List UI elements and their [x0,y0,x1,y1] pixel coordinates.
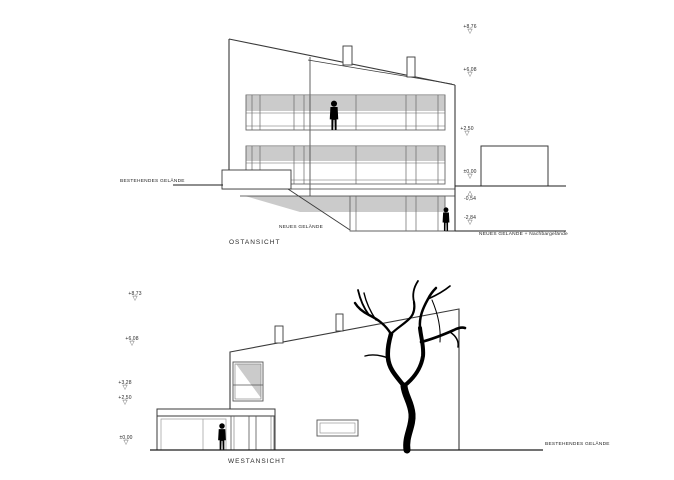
east-chimney-1 [343,46,352,65]
elevation-marker: +6,08 ▽ [463,68,476,78]
existing-ground-label-west: BESTEHENDES GELÄNDE [545,443,610,448]
west-upper-window [233,362,263,401]
elevation-marker: +3,28 ▽ [118,381,131,391]
elevations-linework [0,0,674,480]
west-chimney-2 [336,314,343,331]
elevation-value: -0,54 [464,197,476,202]
level-triangle-icon: ▽ [468,73,473,78]
elevation-marker: -2,84 ▽ [464,216,476,226]
west-elevation-title: WESTANSICHT [228,459,286,466]
east-elevation-title: OSTANSICHT [229,240,280,247]
new-ground-neighbor-label-east: NEUES GELÄNDE + Nachbargelände [479,233,568,238]
east-shadow-bands [245,96,445,212]
elevation-marker: +2,50 ▽ [460,127,473,137]
west-facade-window [317,420,358,436]
east-chimney-2 [407,57,415,77]
new-ground-label-east: NEUES GELÄNDE [279,226,323,231]
drawing-sheet: +8,76 ▽ +6,08 ▽ +2,50 ▽ ±0,00 ▽ △ -0,54 … [0,0,674,480]
level-triangle-icon: ▽ [468,221,473,226]
west-elevation-group [150,281,543,450]
level-triangle-icon: ▽ [467,175,472,180]
elevation-marker: △ -0,54 [464,192,476,202]
level-triangle-icon: ▽ [133,297,138,302]
level-triangle-icon: ▽ [123,441,128,446]
east-roof-edge [229,39,455,85]
level-triangle-icon: ▽ [123,401,128,406]
existing-ground-label-east: BESTEHENDES GELÄNDE [120,180,185,185]
east-neighbor-building [481,146,548,186]
elevation-marker: ±0,00 ▽ [120,436,133,446]
elevation-marker: ±0,00 ▽ [464,170,477,180]
west-annex-roof-slab [157,409,275,416]
east-terrace-step [222,170,291,189]
elevation-marker: +8,76 ▽ [463,25,476,35]
elevation-marker: +6,08 ▽ [125,337,138,347]
level-triangle-icon: ▽ [468,30,473,35]
level-triangle-icon: ▽ [130,342,135,347]
level-triangle-icon: ▽ [465,132,470,137]
east-roof-inner-edge [308,60,452,84]
elevation-marker: +8,73 ▽ [128,292,141,302]
elevation-marker: +2,50 ▽ [118,396,131,406]
east-elevation-group [173,39,566,231]
west-garage-annex [157,409,275,450]
west-chimney-1 [275,326,283,343]
level-triangle-icon: ▽ [123,386,128,391]
west-garage-opening [161,419,226,450]
